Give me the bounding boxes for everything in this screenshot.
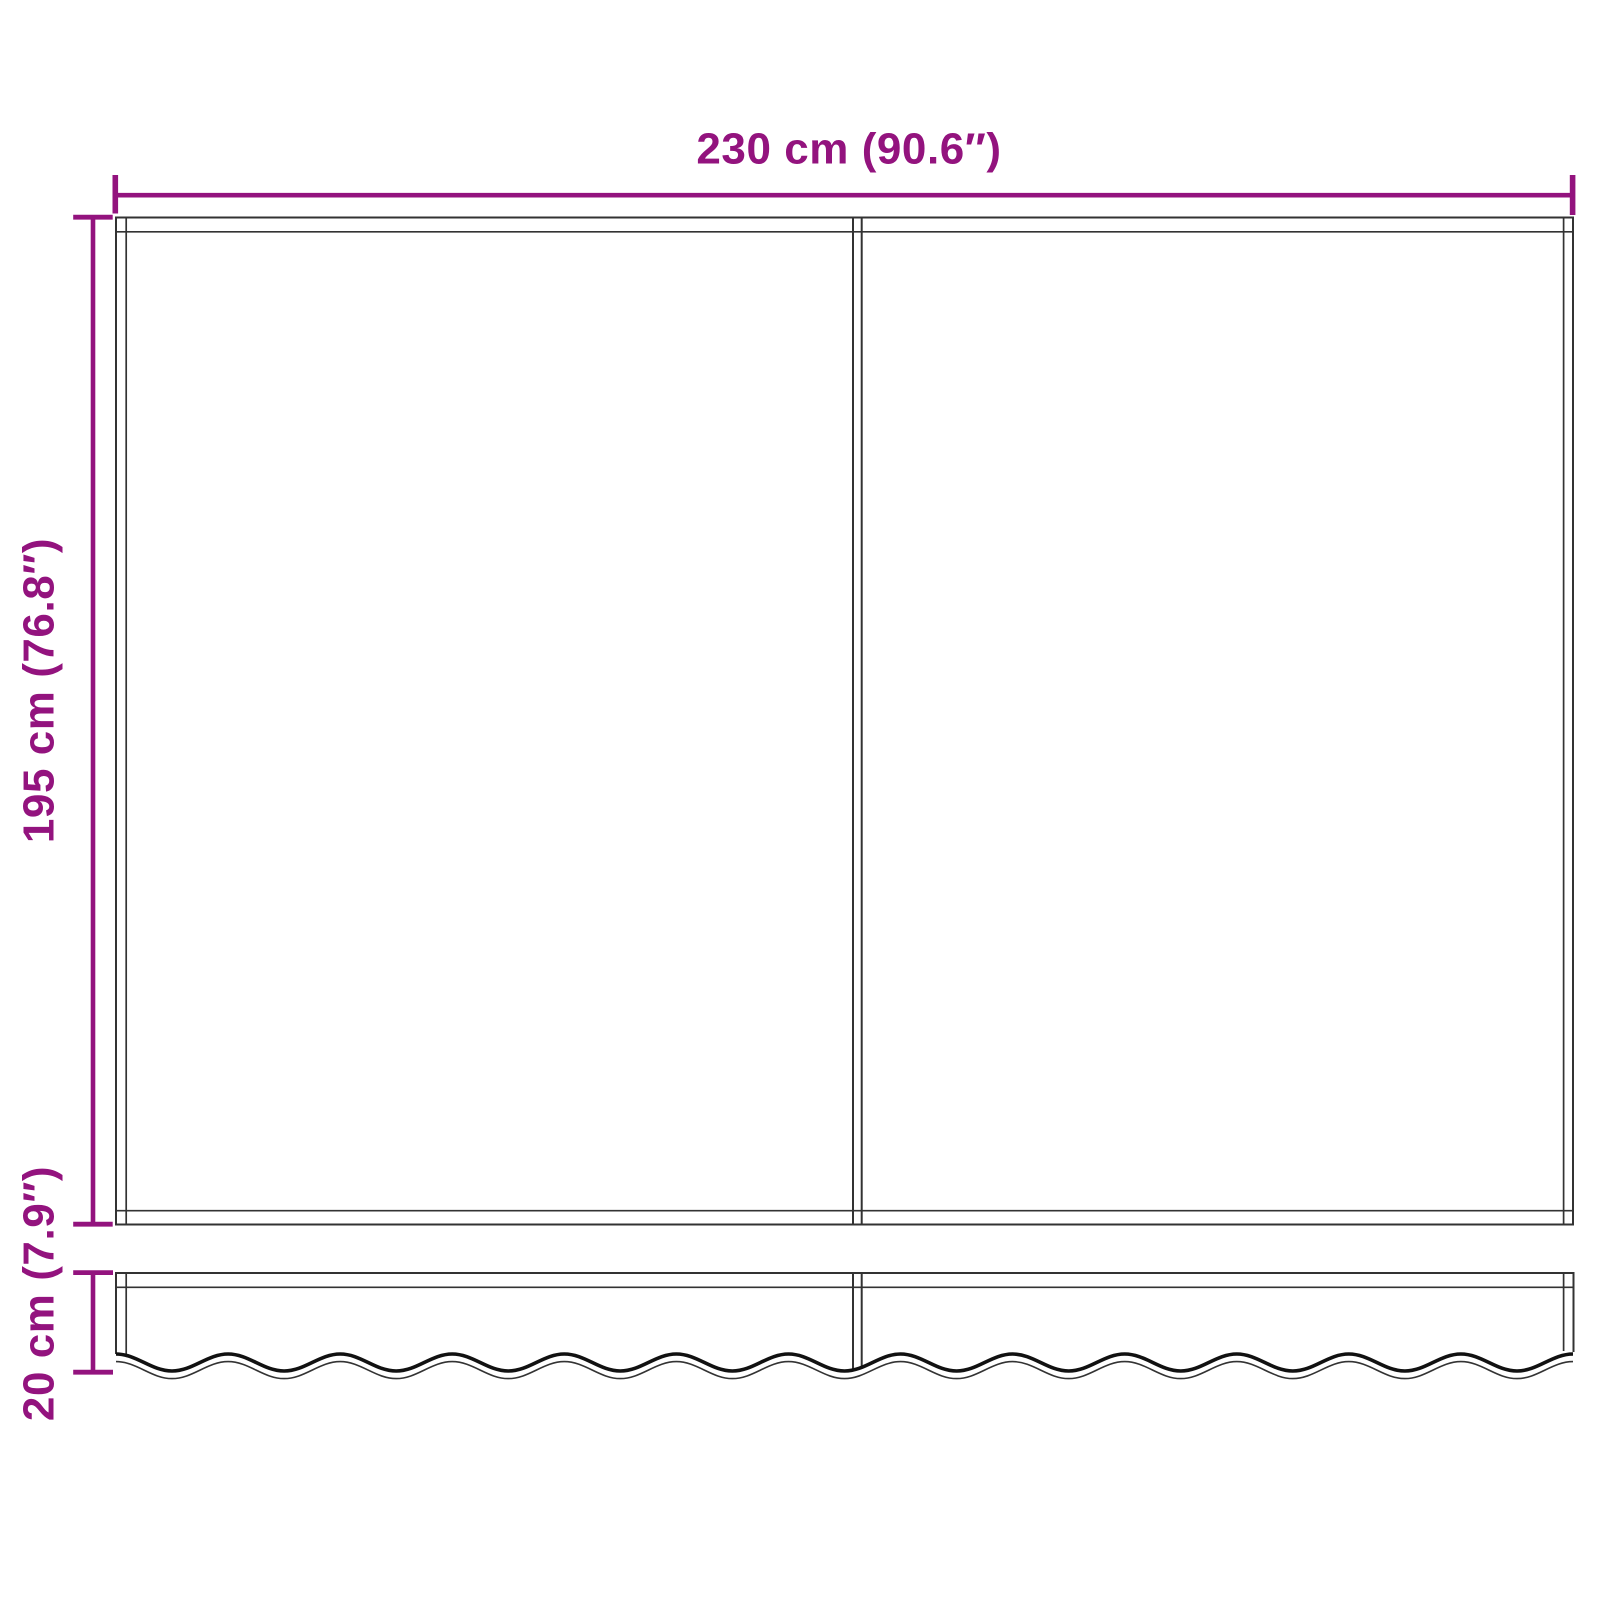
svg-text:230 cm (90.6″): 230 cm (90.6″): [696, 125, 1001, 174]
svg-text:20 cm (7.9″): 20 cm (7.9″): [15, 1166, 64, 1421]
svg-text:195 cm (76.8″): 195 cm (76.8″): [15, 538, 64, 843]
